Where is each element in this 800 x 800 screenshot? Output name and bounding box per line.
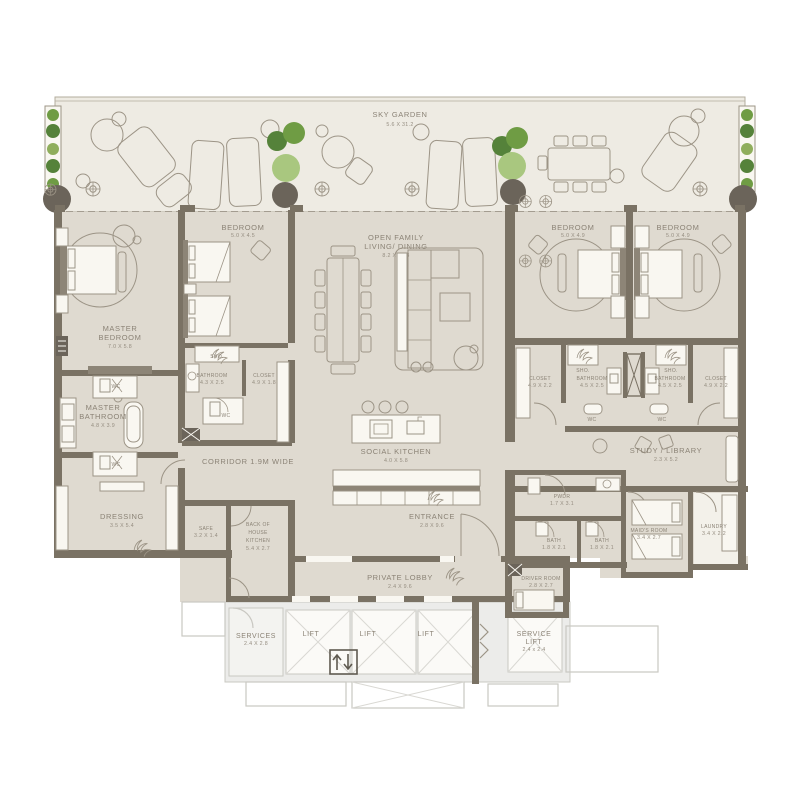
shaft [627,354,641,396]
room-dims: 4.9 X 2.2 [528,383,552,389]
room-dims: 5.0 X 4.9 [561,233,585,239]
bed [183,294,230,338]
room-dims: 7.0 X 5.8 [108,344,132,350]
room-dims: 5.0 X 4.9 [666,233,690,239]
room-label: LAUNDRY [701,524,727,530]
laundry-room: LAUNDRY 3.4 X 2.2 [694,492,738,564]
room-label: WC [112,462,121,468]
room-label: KITCHEN [246,538,270,544]
room-label: BEDROOM [99,333,142,342]
room-dims: 2.4 X 9.6 [388,584,412,590]
wc-room [203,398,243,424]
shower [656,345,686,365]
shaft [182,428,200,441]
room-dims: 2.4 x 2.4 [522,647,545,653]
room-label: MASTER [86,403,121,412]
room-dims: 5.0 X 4.5 [231,233,255,239]
closet-unit [56,295,68,313]
closet-unit [56,228,68,246]
toilet [528,478,540,494]
toilet [586,522,598,536]
bed [634,248,682,300]
closet-unit [611,296,625,318]
light-fixture-icon [405,182,419,196]
room-label: BATHROOM [577,376,608,382]
room-dims: 5.4 X 2.7 [246,546,270,552]
room-label: BATHROOM [197,373,228,379]
room-label: SHO. [210,354,223,360]
room-dims: 3.4 X 2.2 [702,531,726,537]
room-label: CLOSET [253,373,275,379]
room-label: BATHROOM [655,376,686,382]
room-label: SOCIAL KITCHEN [361,447,432,456]
room-label: MASTER [103,324,138,333]
room-label: WC [658,417,667,423]
bed [514,590,554,610]
room-label: STUDY / LIBRARY [630,446,703,455]
room-dims: 2.4 X 2.8 [244,641,268,647]
room-label: BACK OF [246,522,270,528]
room-label: PWDR [554,494,571,500]
room-label: DRIVER ROOM [521,576,560,582]
closet-unit [277,362,289,442]
lift-shaft [418,610,478,674]
room-label: MAID'S ROOM [630,528,667,534]
room-dims: 1.7 X 3.1 [550,501,574,507]
room-label: CLOSET [705,376,727,382]
sky-garden: SKY GARDEN 5.6 X 31.2 [43,97,757,213]
light-fixture-icon [540,196,552,208]
light-fixture-icon [45,184,56,195]
room-dims: 4.5 X 2.5 [658,383,682,389]
toilet [584,404,602,414]
room-label: SERVICES [236,633,276,640]
room-label: SERVICE [517,631,552,638]
room-label: SKY GARDEN [372,110,427,119]
floor-plan-drawing: SKY GARDEN 5.6 X 31.2 SERV [0,0,800,800]
room-dims: 4.9 X 2.2 [704,383,728,389]
room-dims: 2.8 X 9.6 [420,523,444,529]
lower-floor-outline [352,682,464,708]
vanity [607,368,621,394]
room-label: BEDROOM [552,223,595,232]
light-fixture-icon [693,182,707,196]
room-dims: 4.8 X 3.9 [91,423,115,429]
room-dims: 3.2 X 1.4 [194,533,218,539]
toilet [650,404,668,414]
nightstand [184,284,196,294]
light-fixture-icon [86,182,100,196]
light-fixture-icon [540,255,552,267]
room-dims: 1.8 X 2.1 [590,545,614,551]
corridor: CORRIDOR 1.9M WIDE [202,457,294,466]
kitchen-island [352,415,440,443]
room-label: LIFT [418,631,435,638]
bed [183,240,230,284]
bed [578,248,626,300]
closet-unit [635,296,649,318]
room-label: HOUSE [248,530,268,536]
room-dims: 4.5 X 2.5 [580,383,604,389]
room-label: WC [222,413,231,419]
room-label: SAFE [199,526,214,532]
room-label: CLOSET [529,376,551,382]
room-label: CORRIDOR 1.9M WIDE [202,457,294,466]
room-dims: 3.5 X 5.4 [110,523,134,529]
room-dims: 2.8 X 2.7 [529,583,553,589]
closet-unit [166,486,178,550]
light-fixture-icon [519,255,531,267]
room-label: BEDROOM [657,223,700,232]
room-dims: 4.3 X 2.5 [200,380,224,386]
room-label: PRIVATE LOBBY [367,573,433,582]
island-dresser [100,482,144,491]
room-label: SHO. [576,368,589,374]
closet-unit [56,486,68,550]
kitchen-counter [333,470,480,505]
service-core: SERVICES 2.4 X 2.8 LIFT LIFT LIFT SERVIC… [182,602,658,708]
maids-room: MAID'S ROOM 3.4 X 2.7 [628,492,682,559]
room-dims: 2.3 X 5.2 [654,457,678,463]
room-label: BATH [595,538,609,544]
room-label: SHO. [664,368,677,374]
room-dims: 5.6 X 31.2 [386,122,413,128]
shaft [508,564,522,576]
closet-unit [635,226,649,248]
room-label: BATH [547,538,561,544]
room-label: BATHROOM [79,412,127,421]
light-fixture-icon [315,182,329,196]
room-label: LIFT [526,639,543,646]
bed [60,244,116,296]
floor-plan: SKY GARDEN 5.6 X 31.2 SERV [0,0,800,800]
counter [722,495,737,551]
closet-unit [611,226,625,248]
room-dims: 3.4 X 2.7 [637,535,661,541]
bookshelf [726,436,738,482]
shower [568,345,598,365]
room-dims: 4.0 X 5.8 [384,458,408,464]
lift-shaft [286,610,350,674]
toilet [536,522,548,536]
room-dims: 1.8 X 2.1 [542,545,566,551]
room-label: BEDROOM [222,223,265,232]
room-label: ENTRANCE [409,512,455,521]
bathtub [124,402,143,448]
room-label: WC [588,417,597,423]
room-label: WC [112,384,121,390]
dresser [88,366,152,374]
room-label: OPEN FAMILY [368,233,424,242]
console [397,253,407,351]
room-label: LIFT [303,631,320,638]
room-label: DRESSING [100,512,144,521]
room-dims: 4.9 X 1.8 [252,380,276,386]
lift-shaft [352,610,416,674]
bed [632,500,682,525]
room-label: LIFT [360,631,377,638]
light-fixture-icon [519,196,531,208]
